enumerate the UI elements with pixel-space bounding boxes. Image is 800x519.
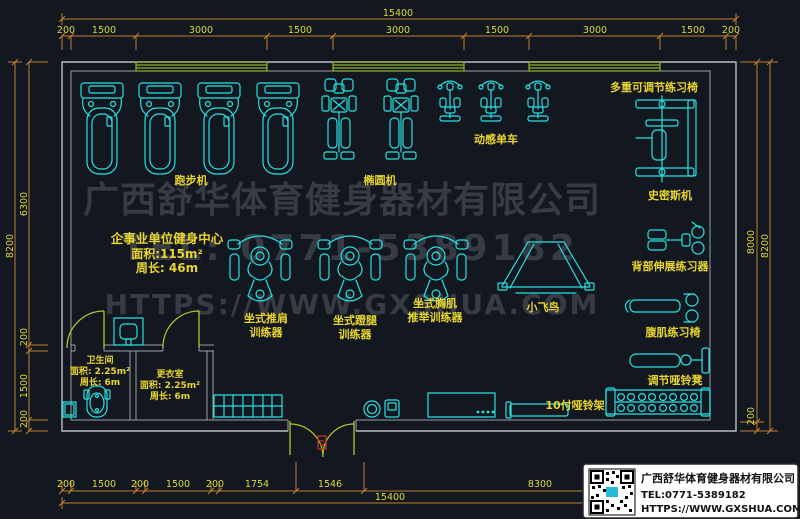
watermark-company: 广西舒华体育健身器材有限公司 xyxy=(83,180,601,221)
label-leg-press-1: 坐式蹬腿 xyxy=(333,313,378,327)
dim-top-seg-7: 1500 xyxy=(681,25,705,36)
label-leg-press-2: 训练器 xyxy=(339,327,373,341)
dim-top-seg-0: 200 xyxy=(57,25,75,36)
dim-bot-seg-4: 200 xyxy=(206,479,224,490)
dim-right-bottom: 200 xyxy=(746,407,757,425)
dim-top-seg-6: 3000 xyxy=(583,25,607,36)
label-chest-press-2: 推举训练器 xyxy=(408,310,464,324)
label-ab-bench: 腹肌练习椅 xyxy=(646,325,701,339)
dim-top-seg-1: 1500 xyxy=(92,25,116,36)
dim-top-seg-4: 3000 xyxy=(386,25,410,36)
dim-top-seg-2: 3000 xyxy=(189,25,213,36)
dim-right-total: 8200 xyxy=(760,234,771,258)
label-cable-fly: 小飞鸟 xyxy=(526,300,560,314)
bathroom-name: 卫生间 xyxy=(86,354,113,366)
titleblock-url: HTTPS://WWW.GXSHUA.COM xyxy=(641,504,800,515)
label-treadmill: 跑步机 xyxy=(175,173,208,187)
dim-right-inner: 8000 xyxy=(746,230,757,254)
label-elliptical: 椭圆机 xyxy=(364,173,397,187)
dim-bot-seg-0: 200 xyxy=(57,479,75,490)
dim-top-seg-5: 1500 xyxy=(485,25,509,36)
dim-left-seg-2: 1500 xyxy=(19,374,30,398)
floor-plan-svg: 广西舒华体育健身器材有限公司 TEL: 0771-5389182 HTTPS:/… xyxy=(0,0,800,519)
dim-left-seg-1: 200 xyxy=(19,328,30,346)
label-shoulder-press-2: 训练器 xyxy=(250,325,284,339)
label-spin-bike: 动感单车 xyxy=(474,132,518,146)
dim-bot-seg-5: 1754 xyxy=(245,479,269,490)
title-block: 广西舒华体育健身器材有限公司 TEL:0771-5389182 HTTPS://… xyxy=(583,464,800,518)
dim-bot-seg-2: 200 xyxy=(131,479,149,490)
titleblock-company: 广西舒华体育健身器材有限公司 xyxy=(641,471,795,485)
dim-bot-seg-1: 1500 xyxy=(92,479,116,490)
dim-top-total: 15400 xyxy=(383,8,413,19)
changing-name: 更衣室 xyxy=(156,368,183,380)
label-shoulder-press-1: 坐式推肩 xyxy=(244,311,288,325)
bathroom-area: 面积: 2.25m² xyxy=(70,365,130,377)
cad-floor-plan-canvas: 广西舒华体育健身器材有限公司 TEL: 0771-5389182 HTTPS:/… xyxy=(0,0,800,519)
dim-bottom-total: 15400 xyxy=(375,492,405,503)
label-back-extension: 背部伸展练习器 xyxy=(632,259,710,273)
info-title: 企事业单位健身中心 xyxy=(110,231,224,246)
dim-left-seg-0: 6300 xyxy=(19,192,30,216)
dim-top-seg-8: 200 xyxy=(722,25,740,36)
label-dumbbell-rack: 10付哑铃架 xyxy=(545,398,604,412)
dim-top-seg-3: 1500 xyxy=(288,25,312,36)
qr-code xyxy=(589,469,635,515)
label-smith-machine: 史密斯机 xyxy=(648,188,692,202)
titleblock-tel: TEL:0771-5389182 xyxy=(641,490,746,501)
info-area: 面积:115m² xyxy=(131,246,203,261)
bathroom-perimeter: 周长: 6m xyxy=(80,376,120,388)
label-adjustable-bench: 多重可调节练习椅 xyxy=(610,80,698,94)
changing-perimeter: 周长: 6m xyxy=(150,390,190,402)
dim-bot-seg-6: 1546 xyxy=(318,479,342,490)
dim-left-total: 8200 xyxy=(5,234,16,258)
label-chest-press-1: 坐式胸肌 xyxy=(413,296,457,310)
dim-bot-seg-7: 8300 xyxy=(528,479,552,490)
label-dumbbell-bench: 调节哑铃凳 xyxy=(648,373,704,387)
info-perimeter: 周长: 46m xyxy=(136,260,198,275)
changing-area: 面积: 2.25m² xyxy=(140,379,200,391)
dim-bot-seg-3: 1500 xyxy=(166,479,190,490)
dim-left-seg-3: 200 xyxy=(19,410,30,428)
